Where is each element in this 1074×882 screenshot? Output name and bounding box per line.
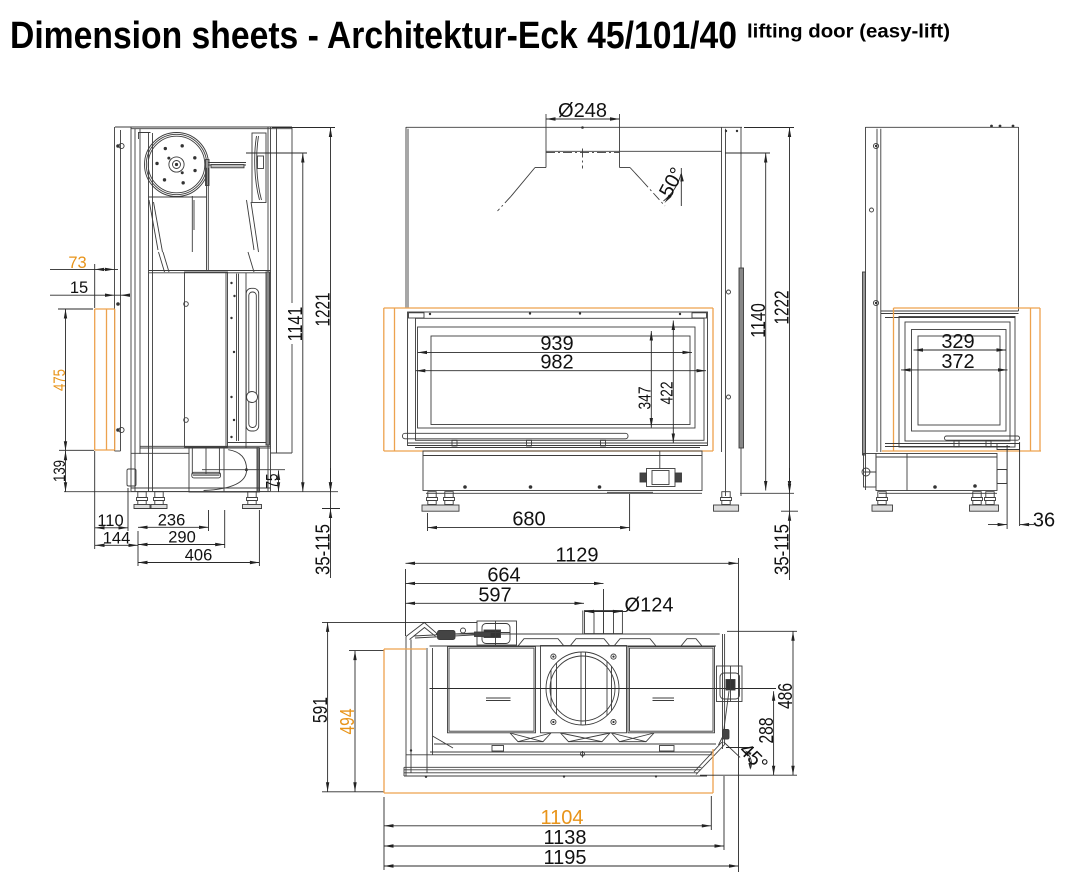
svg-text:288: 288 — [756, 718, 778, 744]
svg-text:144: 144 — [103, 529, 131, 547]
svg-text:494: 494 — [337, 709, 359, 735]
svg-text:475: 475 — [50, 369, 69, 391]
svg-text:35-115: 35-115 — [313, 524, 335, 575]
svg-text:1140: 1140 — [748, 303, 770, 338]
svg-text:1222: 1222 — [772, 291, 794, 325]
svg-text:Dimension sheets - Architektur: Dimension sheets - Architektur-Eck 45/10… — [10, 15, 737, 57]
svg-text:982: 982 — [540, 351, 573, 373]
svg-text:1141: 1141 — [285, 307, 307, 342]
svg-text:591: 591 — [310, 697, 332, 723]
svg-text:290: 290 — [168, 529, 196, 547]
svg-text:Ø124: Ø124 — [625, 595, 674, 617]
svg-text:1221: 1221 — [313, 293, 335, 327]
svg-text:236: 236 — [158, 511, 186, 529]
svg-text:680: 680 — [512, 508, 545, 530]
svg-text:36: 36 — [1033, 509, 1055, 531]
svg-text:15: 15 — [70, 279, 88, 297]
svg-text:406: 406 — [185, 547, 213, 565]
svg-text:lifting door (easy-lift): lifting door (easy-lift) — [747, 22, 950, 43]
svg-text:35-115: 35-115 — [772, 524, 794, 575]
svg-text:486: 486 — [775, 683, 797, 709]
svg-text:139: 139 — [50, 460, 69, 482]
